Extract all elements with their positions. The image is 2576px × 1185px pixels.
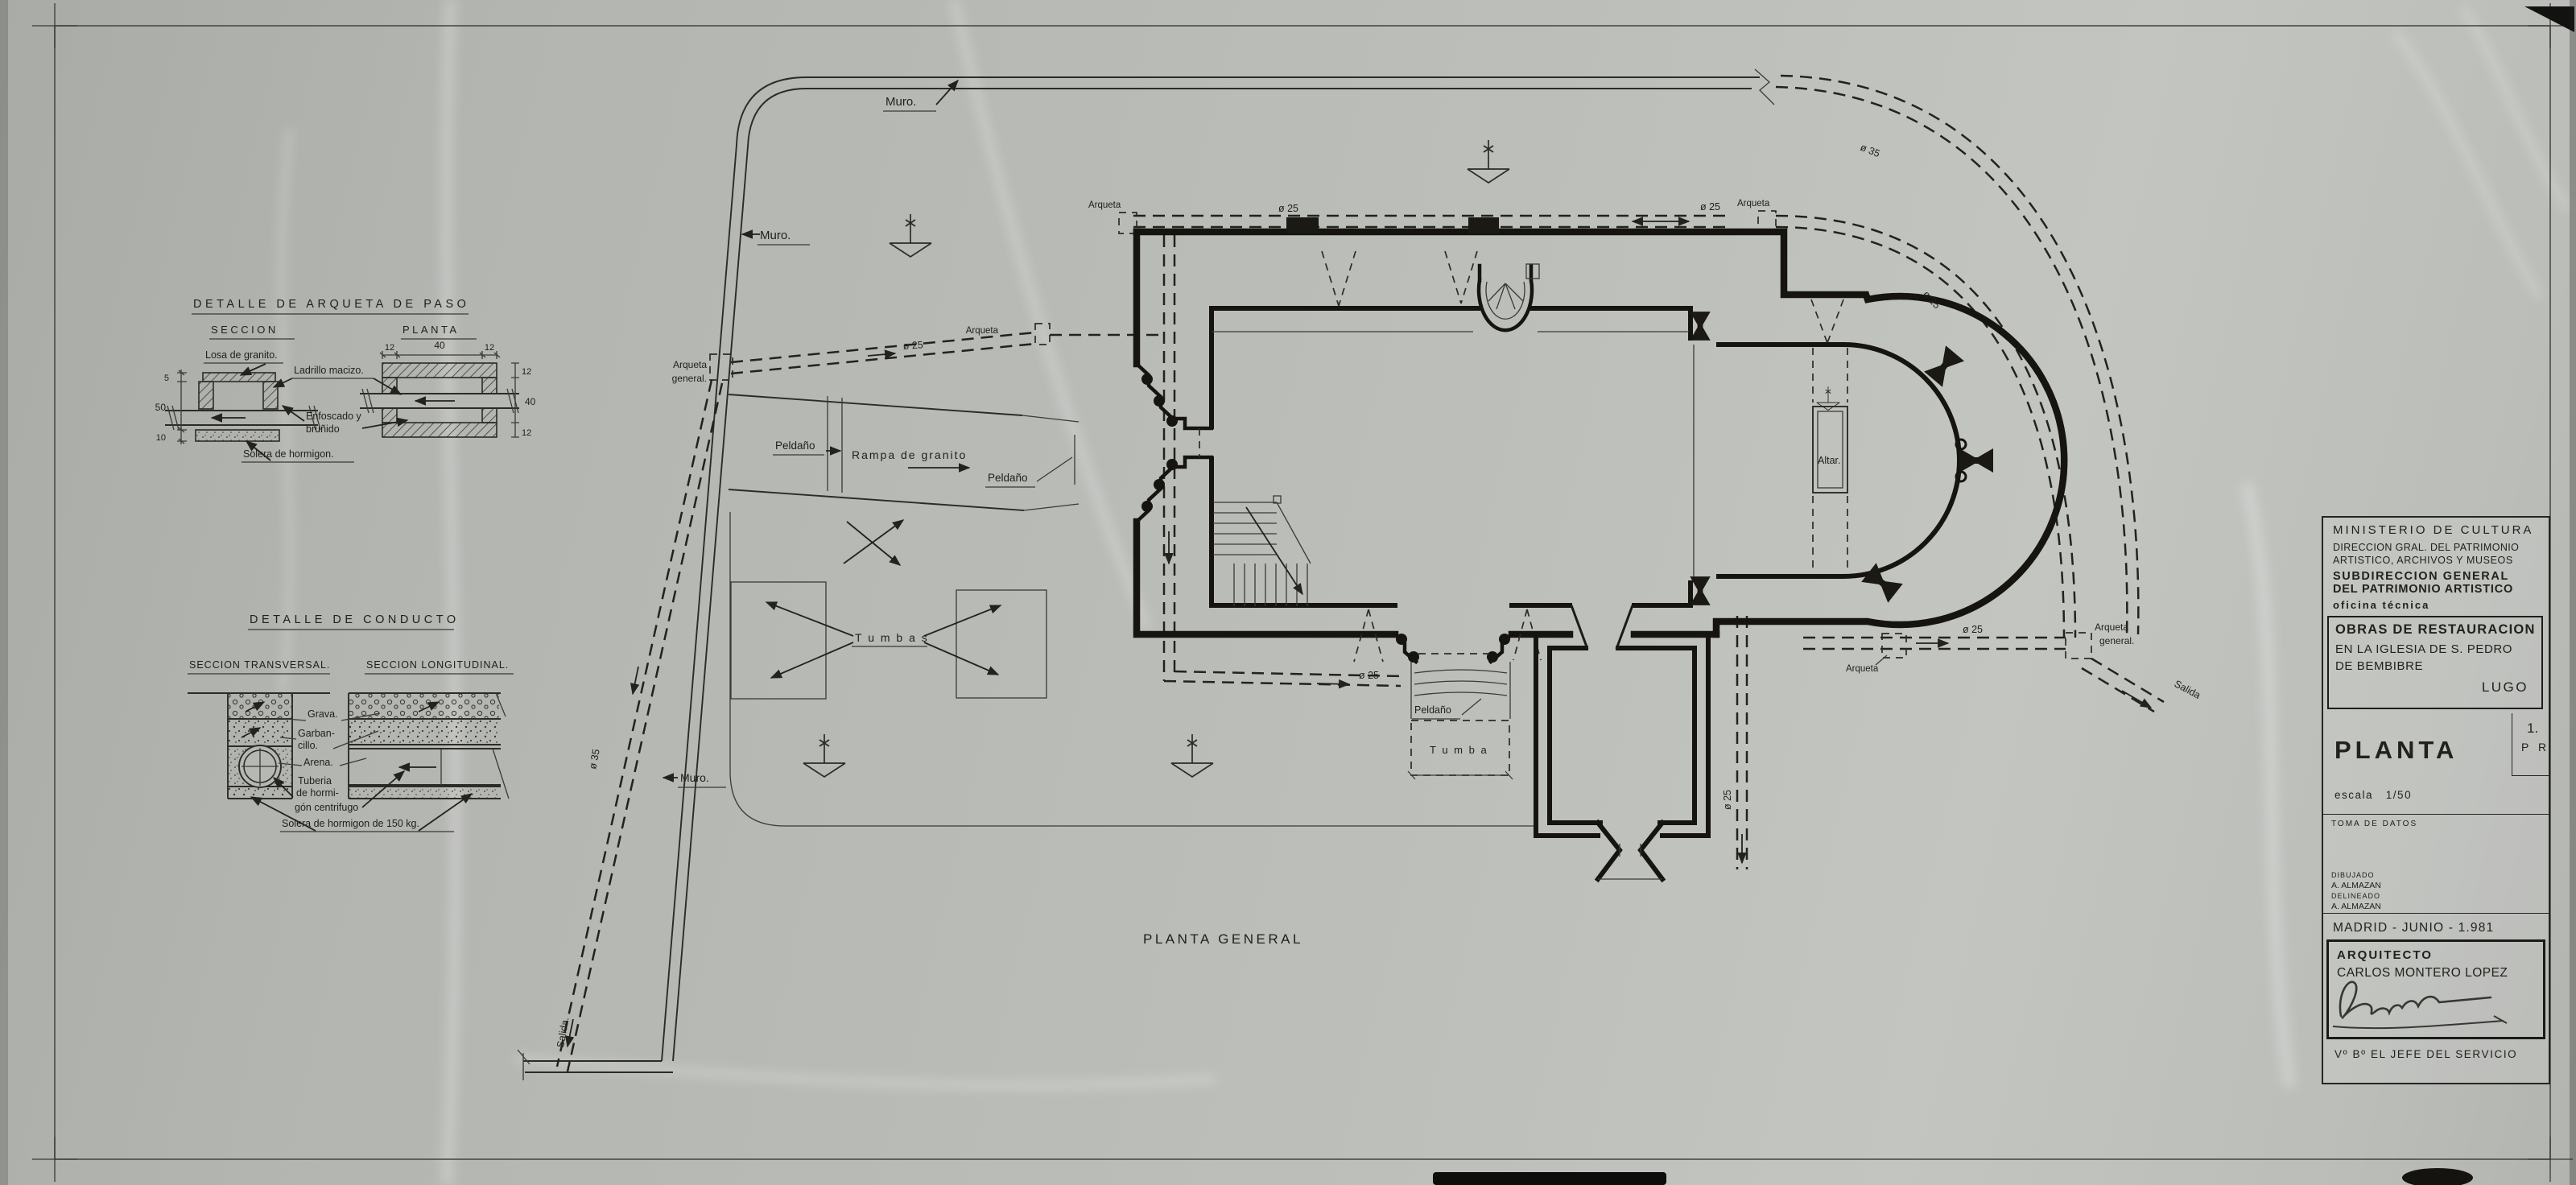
drawn-label: DIBUJADO: [2331, 871, 2375, 879]
label-tuberia-3: gón centrifugo: [295, 802, 358, 813]
label-pipe-south: ø 25: [1359, 670, 1379, 681]
label-tuberia-2: de hormi-: [296, 787, 339, 799]
project-line-2: EN LA IGLESIA DE S. PEDRO: [2335, 642, 2512, 656]
label-arqueta-general-w1: Arqueta: [673, 359, 707, 370]
label-arena: Arena.: [303, 757, 333, 768]
sheet-border: [32, 3, 2573, 1182]
ministry-line-2: DIRECCION GRAL. DEL PATRIMONIO: [2333, 542, 2519, 553]
label-tumba: T u m b a: [1430, 744, 1488, 756]
dim-planta-top-12a: 12: [385, 343, 394, 353]
label-arqueta-north: Arqueta: [1737, 199, 1770, 209]
label-peldano-portal: Peldaño: [988, 472, 1028, 484]
label-seccion-transversal: SECCION TRANSVERSAL.: [189, 659, 330, 671]
architect-name: CARLOS MONTERO LOPEZ: [2337, 966, 2508, 981]
province-label: LUGO: [2482, 679, 2529, 696]
label-losa: Losa de granito.: [205, 349, 278, 361]
dim-planta-right-40: 40: [525, 396, 536, 407]
site-walls: [518, 69, 1774, 1080]
ministry-line-3: ARTISTICO, ARCHIVOS Y MUSEOS: [2333, 555, 2513, 566]
dim-planta-top-12b: 12: [485, 343, 494, 353]
label-pipe-north-1: ø 25: [1278, 203, 1298, 214]
sheet-code: P R: [2521, 741, 2549, 754]
label-salida-east: Salida: [2173, 678, 2202, 701]
technical-office-label: oficina técnica: [2333, 599, 2429, 611]
dim-seccion-50: 50: [155, 402, 167, 413]
label-tumbas: T u m b a s: [855, 631, 929, 644]
paper-creases: [282, 0, 2568, 1185]
label-pipe-curve-outer: ø 35: [1859, 142, 1881, 159]
sheet-number: 1.: [2527, 720, 2538, 737]
subdirection-line-2: DEL PATRIMONIO ARTISTICO: [2333, 583, 2513, 596]
sheet-title-section: PLANTA escala 1/50 1. P R: [2323, 713, 2549, 815]
label-arqueta-west: Arqueta: [966, 326, 999, 336]
traced-by: A. ALMAZAN: [2331, 902, 2381, 911]
plan-caption: PLANTA GENERAL: [1143, 931, 1303, 947]
conduit-network: [557, 76, 2164, 1071]
label-rampa: Rampa de granito: [852, 448, 967, 461]
ministry-line-1: MINISTERIO DE CULTURA: [2333, 523, 2533, 537]
detail-arqueta-planta-label: PLANTA: [402, 324, 460, 336]
project-line-1: OBRAS DE RESTAURACION: [2335, 622, 2536, 638]
dim-seccion-10: 10: [156, 433, 166, 443]
label-garbancillo-1: Garban-: [298, 728, 335, 739]
architect-box: ARQUITECTO CARLOS MONTERO LOPEZ: [2326, 939, 2545, 1039]
label-peldano-south: Peldaño: [1414, 704, 1451, 716]
drawn-by: A. ALMAZAN: [2331, 881, 2381, 890]
label-arqueta-general-e1: Arqueta: [2095, 621, 2128, 633]
project-line-3: DE BEMBIBRE: [2335, 659, 2423, 673]
label-peldano-ramp: Peldaño: [775, 440, 815, 452]
label-arqueta-general-e2: general.: [2099, 635, 2134, 646]
scale-value: 1/50: [2386, 789, 2412, 801]
phase-label: TOMA DE DATOS: [2331, 820, 2417, 828]
dim-seccion-5: 5: [164, 374, 169, 383]
ramp-and-tombs: [729, 140, 1509, 777]
label-pipe-sacristy: ø 25: [1722, 790, 1733, 810]
dim-planta-right-12a: 12: [522, 367, 531, 377]
scale-row: escala 1/50: [2334, 789, 2412, 801]
label-muro-left: Muro.: [760, 229, 791, 242]
detail-arqueta-title: DETALLE DE ARQUETA DE PASO: [193, 298, 469, 311]
arqueta-seccion-drawing: 5 50 10: [155, 370, 320, 444]
detail-arqueta-seccion-label: SECCION: [211, 324, 279, 336]
label-arqueta-general-w2: general.: [672, 373, 707, 384]
label-seccion-longitudinal: SECCION LONGITUDINAL.: [366, 659, 509, 671]
label-pipe-west: ø 25: [902, 339, 923, 352]
dim-planta-top-40: 40: [434, 340, 445, 351]
conducto-longitudinal-drawing: [349, 693, 509, 799]
label-muro-top: Muro.: [885, 95, 916, 109]
traced-label: DELINEADO: [2331, 892, 2380, 900]
label-arqueta-south: Arqueta: [1846, 664, 1879, 674]
label-pipe-curve-inner: ø 25: [1921, 288, 1942, 311]
sheet-number-cell: 1. P R: [2512, 713, 2549, 776]
label-garbancillo-2: cillo.: [298, 740, 318, 751]
label-pipe-diagonal: ø 35: [587, 748, 602, 770]
place-date: MADRID - JUNIO - 1.981: [2333, 921, 2494, 935]
label-pipe-east: ø 25: [1963, 624, 1983, 635]
detail-conducto-title: DETALLE DE CONDUCTO: [250, 613, 460, 626]
label-arqueta-nw: Arqueta: [1088, 200, 1121, 210]
architect-label: ARQUITECTO: [2337, 948, 2433, 962]
dim-planta-right-12b: 12: [522, 428, 531, 438]
label-enfoscado-1: Enfoscado y: [306, 411, 362, 422]
scan-artifacts: [0, 0, 2576, 1185]
title-block: MINISTERIO DE CULTURA DIRECCION GRAL. DE…: [2322, 516, 2550, 1084]
sheet-title: PLANTA: [2334, 736, 2458, 765]
church-plan: [1137, 217, 2064, 879]
label-muro-bottom: Muro.: [680, 771, 709, 784]
label-altar: Altar.: [1818, 455, 1841, 466]
label-enfoscado-2: bruñido: [306, 423, 340, 435]
label-tuberia-1: Tuberia: [298, 775, 332, 787]
scale-label: escala: [2334, 789, 2373, 801]
drawing-sheet-svg: DETALLE DE ARQUETA DE PASO SECCION PLANT…: [0, 0, 2576, 1185]
label-ladrillo: Ladrillo macizo.: [294, 365, 364, 376]
approval-label: Vº Bº EL JEFE DEL SERVICIO: [2334, 1048, 2517, 1060]
label-grava: Grava.: [308, 708, 338, 720]
subdirection-line-1: SUBDIRECCION GENERAL: [2333, 570, 2509, 583]
detail-conducto: DETALLE DE CONDUCTO SECCION TRANSVERSAL.…: [188, 613, 514, 832]
label-pipe-north-2: ø 25: [1700, 201, 1720, 213]
plan-labels: Muro. Muro. Muro. Arqueta Arqueta Arquet…: [555, 81, 2202, 1049]
detail-arqueta-de-paso: DETALLE DE ARQUETA DE PASO SECCION PLANT…: [155, 298, 536, 462]
project-title-box: OBRAS DE RESTAURACION EN LA IGLESIA DE S…: [2327, 616, 2543, 709]
credits-section: TOMA DE DATOS DIBUJADO A. ALMAZAN DELINE…: [2323, 815, 2549, 914]
